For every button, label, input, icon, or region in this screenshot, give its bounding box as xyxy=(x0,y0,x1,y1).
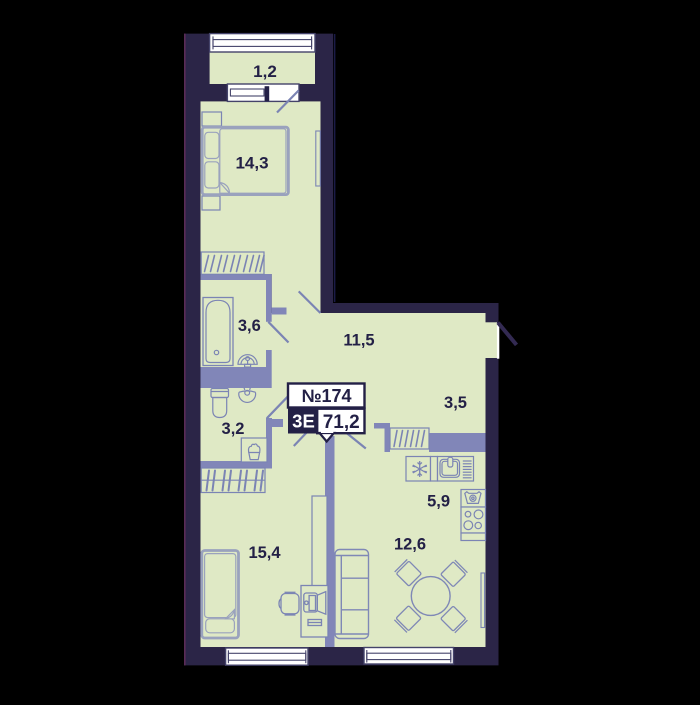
svg-text:3,2: 3,2 xyxy=(222,420,245,438)
svg-text:14,3: 14,3 xyxy=(235,154,268,173)
svg-text:3Е: 3Е xyxy=(292,411,315,432)
svg-text:№174: №174 xyxy=(301,386,351,406)
svg-text:15,4: 15,4 xyxy=(248,544,281,562)
svg-text:11,5: 11,5 xyxy=(343,332,374,350)
svg-text:1,2: 1,2 xyxy=(253,62,277,81)
svg-text:3,6: 3,6 xyxy=(238,317,261,335)
svg-text:5,9: 5,9 xyxy=(427,493,450,511)
svg-text:12,6: 12,6 xyxy=(394,535,426,553)
svg-text:71,2: 71,2 xyxy=(323,412,360,433)
svg-text:3,5: 3,5 xyxy=(444,394,467,412)
